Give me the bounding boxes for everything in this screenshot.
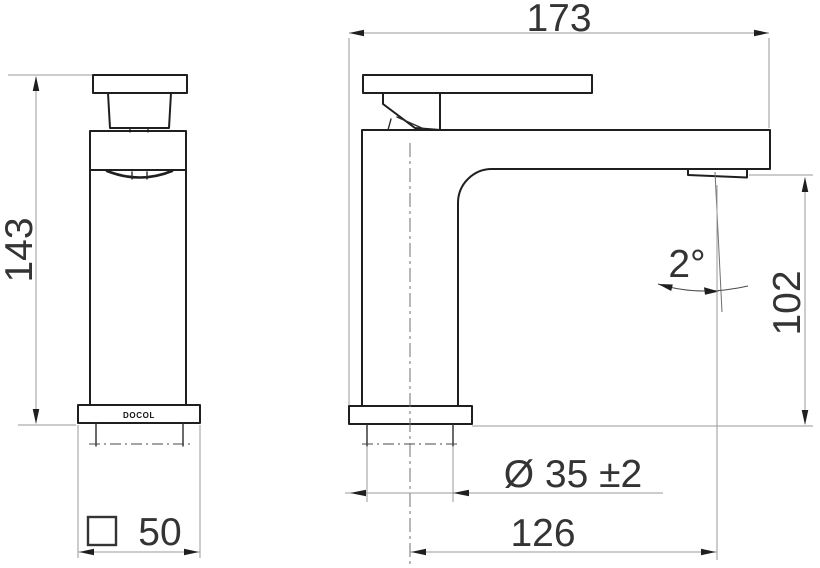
arrowhead (350, 490, 366, 497)
side-neck-underside (397, 117, 424, 129)
dim-overall-height: 143 (0, 75, 92, 425)
arrowhead (184, 549, 199, 556)
dim-outlet-height: 102 (472, 175, 813, 426)
side-handle-lever (363, 75, 592, 93)
arrowhead (33, 409, 40, 424)
dim-text-143: 143 (0, 217, 41, 282)
front-handle-neck (108, 93, 171, 128)
arrowhead (411, 549, 426, 556)
arrowhead (701, 549, 716, 556)
dim-text-50: 50 (138, 511, 181, 554)
front-outlet-arc (107, 171, 172, 178)
dim-text-2deg: 2° (668, 243, 705, 286)
dim-text-126: 126 (510, 512, 575, 555)
drawing-canvas: DOCOL 173 (0, 0, 820, 568)
dim-text-102: 102 (766, 270, 809, 335)
arrowhead (802, 177, 809, 192)
technical-drawing-page: DOCOL 173 (0, 0, 820, 568)
dim-spout-angle: 2° (658, 243, 748, 295)
dim-text-diameter: Ø 35 ±2 (504, 453, 642, 496)
front-handle-cap (93, 75, 187, 93)
dimensions: 173 143 102 2° (0, 0, 813, 560)
side-aerator (688, 169, 747, 178)
dim-text-173: 173 (526, 0, 591, 40)
square-symbol (88, 517, 116, 545)
dim-shank-diameter: Ø 35 ±2 (345, 447, 663, 502)
arrowhead (754, 30, 769, 37)
arrowhead (658, 284, 673, 291)
arrowhead (79, 549, 94, 556)
side-handle-neck (383, 93, 440, 130)
arrowhead (349, 30, 364, 37)
front-view: DOCOL (78, 75, 200, 446)
side-neck-notch (388, 119, 391, 130)
arrowhead (33, 76, 40, 91)
dim-outlet-reach: 126 (410, 185, 717, 560)
arrowhead (453, 490, 469, 497)
side-body-outline (362, 130, 770, 406)
dim-overall-width: 173 (349, 0, 769, 405)
brand-label: DOCOL (123, 411, 155, 420)
arrowhead (802, 410, 809, 425)
